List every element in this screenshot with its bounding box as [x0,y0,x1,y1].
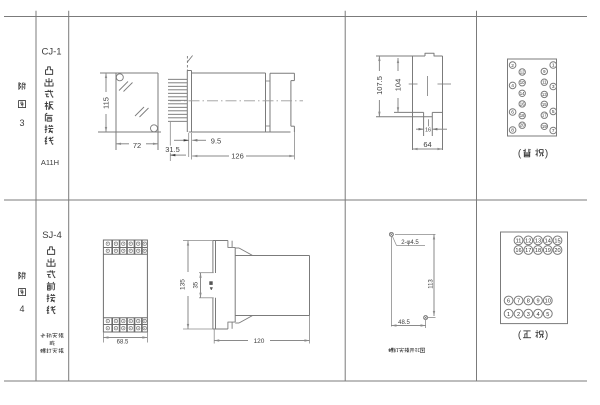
svg-text:12: 12 [525,239,531,245]
svg-text:8: 8 [527,299,530,305]
svg-text:(: ( [518,149,522,160]
svg-text:64: 64 [423,140,431,149]
svg-text:115: 115 [101,97,110,109]
svg-text:31.5: 31.5 [165,145,180,154]
svg-text:20: 20 [520,123,525,128]
svg-text:11: 11 [542,80,547,85]
svg-text:1: 1 [507,312,510,318]
svg-text:4: 4 [511,83,514,89]
svg-text:17: 17 [542,113,547,118]
svg-text:68.5: 68.5 [117,340,129,346]
svg-text:19: 19 [542,124,547,129]
svg-text:1: 1 [552,63,555,69]
svg-text:107.5: 107.5 [375,76,384,95]
svg-text:15: 15 [542,102,547,107]
svg-text:8: 8 [511,128,514,134]
svg-text:15: 15 [554,239,560,245]
svg-text:35: 35 [193,281,199,288]
svg-text:4: 4 [19,304,24,314]
svg-text:16: 16 [425,127,431,133]
svg-text:19: 19 [545,248,551,254]
svg-text:9: 9 [543,69,546,74]
svg-text:14: 14 [545,239,551,245]
svg-text:5: 5 [552,109,555,115]
svg-text:6: 6 [511,110,514,116]
svg-text:5: 5 [546,312,549,318]
svg-text:113: 113 [429,279,435,289]
svg-text:7: 7 [552,128,555,134]
svg-text:17: 17 [525,248,531,254]
svg-text:3: 3 [19,118,24,128]
svg-text:6: 6 [507,299,510,305]
svg-text:CJ-1: CJ-1 [41,47,61,58]
svg-text:(: ( [518,330,522,341]
svg-text:13: 13 [535,239,541,245]
svg-text:16: 16 [520,101,525,106]
svg-text:120: 120 [254,338,265,345]
svg-text:SJ-4: SJ-4 [42,230,62,241]
svg-text:7: 7 [517,299,520,305]
svg-text:13: 13 [542,92,547,97]
svg-text:18: 18 [535,248,541,254]
svg-text:18: 18 [520,113,525,118]
svg-text:126: 126 [231,151,244,160]
svg-text:10: 10 [520,80,525,85]
svg-text:104: 104 [394,79,403,92]
svg-text:9.5: 9.5 [211,136,221,145]
svg-text:14: 14 [520,91,525,96]
svg-text:): ) [545,330,548,341]
svg-text:48.5: 48.5 [398,320,410,326]
svg-text:4: 4 [536,312,539,318]
svg-text:2-φ4.5: 2-φ4.5 [401,240,419,246]
svg-text:9: 9 [536,299,539,305]
svg-text:2: 2 [511,63,514,69]
svg-text:): ) [545,149,548,160]
svg-text:135: 135 [180,279,187,290]
svg-text:3: 3 [552,84,555,90]
svg-text:11: 11 [516,239,522,245]
svg-text:A11H: A11H [41,158,59,167]
svg-text:2: 2 [517,312,520,318]
svg-text:10: 10 [545,299,551,305]
svg-text:3: 3 [527,312,530,318]
svg-text:20: 20 [554,248,560,254]
svg-text:12: 12 [520,70,525,75]
svg-text:72: 72 [133,141,141,150]
svg-text:16: 16 [515,248,521,254]
